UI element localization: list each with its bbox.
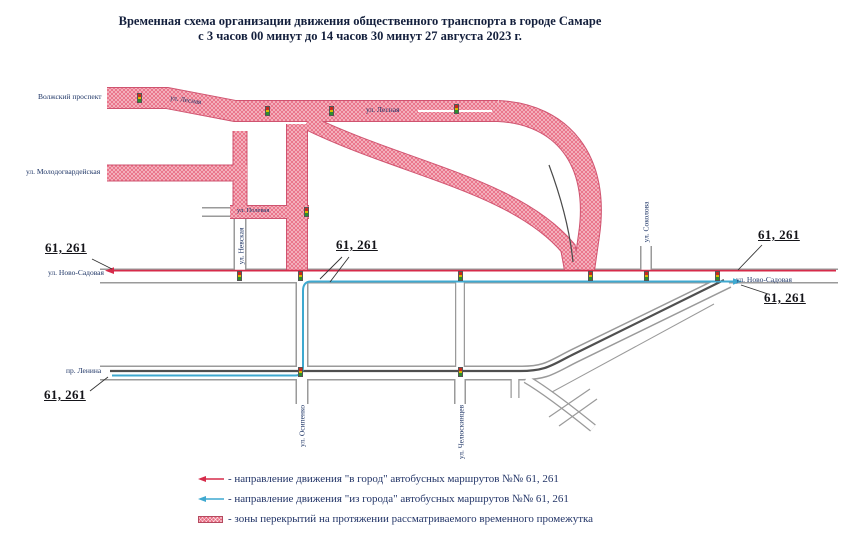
route-callout-west-lenina: 61, 261 (44, 388, 86, 401)
lenina-median-line (110, 280, 724, 371)
traffic-light-icon (298, 367, 303, 377)
traffic-light-icon (329, 106, 334, 116)
road-detail-group (110, 280, 724, 426)
in-city-arrow-icon (198, 475, 228, 483)
street-label-polevaya: ул. Полевая (237, 208, 269, 215)
open-roads-fill-group (100, 212, 838, 428)
street-label-chelyuskintsev: ул. Челюскинцев (457, 405, 465, 459)
route-callout-east-top: 61, 261 (758, 228, 800, 241)
route-callout-west-novo-sadovaya: 61, 261 (45, 241, 87, 254)
legend-text-in-city: - направление движения "в город" автобус… (228, 473, 559, 485)
traffic-light-icon (458, 271, 463, 281)
legend-text-closure: - зоны перекрытий на протяжении рассматр… (228, 513, 593, 525)
street-label-volzhsky-prospekt: Волжский проспект (38, 93, 102, 101)
legend-row-closure: - зоны перекрытий на протяжении рассматр… (198, 509, 758, 529)
street-label-novo-sadovaya-right: ул. Ново-Садовая (736, 276, 792, 284)
street-label-osipenko: ул. Осипенко (298, 405, 306, 447)
transit-scheme-page: Временная схема организации движения общ… (0, 0, 846, 537)
street-label-molodogvardeyskaya: ул. Молодогвардейская (26, 168, 100, 176)
traffic-light-icon (458, 367, 463, 377)
street-label-lesnaya: ул. Лесная (366, 106, 400, 114)
street-label-sokolova: ул. Соколова (642, 202, 650, 243)
street-label-nevskaya: ул. Невская (237, 228, 245, 265)
traffic-light-icon (715, 271, 720, 281)
legend-text-out-city: - направление движения "из города" автоб… (228, 493, 569, 505)
legend: - направление движения "в город" автобус… (198, 469, 758, 529)
traffic-light-icon (644, 271, 649, 281)
traffic-light-icon (265, 106, 270, 116)
route-callout-east-bottom: 61, 261 (764, 291, 806, 304)
traffic-light-icon (237, 271, 242, 281)
street-label-novo-sadovaya-left: ул. Ново-Садовая (48, 269, 104, 277)
open-roads-casing-group (100, 212, 838, 428)
legend-row-in-city: - направление движения "в город" автобус… (198, 469, 758, 489)
route-callout-center: 61, 261 (336, 238, 378, 251)
legend-row-out-city: - направление движения "из города" автоб… (198, 489, 758, 509)
traffic-light-icon (137, 93, 142, 103)
closed-volzhsky-lesnaya (107, 98, 498, 111)
traffic-light-icon (298, 271, 303, 281)
route-map (0, 0, 846, 537)
closure-zone-icon (198, 516, 228, 523)
out-city-arrow-icon (198, 495, 228, 503)
traffic-light-icon (588, 271, 593, 281)
street-label-lenina: пр. Ленина (66, 367, 101, 375)
traffic-light-icon (454, 104, 459, 114)
traffic-light-icon (304, 207, 309, 217)
